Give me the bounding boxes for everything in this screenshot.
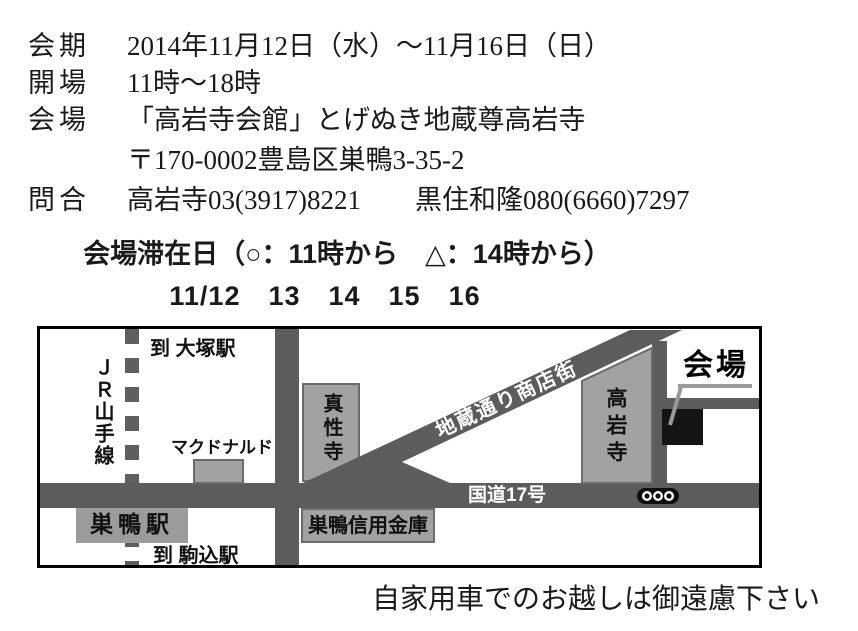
venue-label: 会場 <box>683 351 749 381</box>
info-row-kaiki: 会期 2014年11月12日（水）～11月16日（日） <box>0 24 858 58</box>
access-map: 真性寺 巣鴨駅 <box>37 326 762 568</box>
info-value: 高岩寺03(3917)8221 黒住和隆080(6660)7297 <box>127 178 689 217</box>
building-sugamo-shinkin: 巣鴨信用金庫 <box>301 508 435 543</box>
to-komagome-label: 到 駒込駅 <box>153 546 239 566</box>
info-value: 2014年11月12日（水）～11月16日（日） <box>127 24 611 63</box>
mcdonalds-label: マクドナルド <box>171 439 273 456</box>
info-value: 〒170-0002豊島区巣鴨3-35-2 <box>127 138 464 177</box>
info-row-address: 〒170-0002豊島区巣鴨3-35-2 <box>0 138 858 172</box>
route17-label: 国道17号 <box>468 486 546 505</box>
flyer-page: 会期 2014年11月12日（水）～11月16日（日） 開場 11時～18時 会… <box>0 0 858 631</box>
info-label: 会期 <box>28 24 90 63</box>
building-sugamo-station: 巣鴨駅 <box>76 508 188 543</box>
info-label: 問合 <box>28 178 90 217</box>
schedule-dates: 11/12 13 14 15 16 <box>0 274 650 313</box>
building-mcdonalds <box>193 459 244 484</box>
sugamo-shinkin-label: 巣鴨信用金庫 <box>303 516 433 536</box>
sugamo-station-label: 巣鴨駅 <box>76 513 188 536</box>
koganji-label: 高岩寺 <box>605 387 626 468</box>
info-value: 「高岩寺会館」とげぬき地蔵尊高岩寺 <box>127 98 585 137</box>
info-label: 会場 <box>28 98 90 137</box>
info-value: 11時～18時 <box>127 61 261 100</box>
info-row-venue: 会場 「高岩寺会館」とげぬき地蔵尊高岩寺 <box>0 98 858 132</box>
to-otsuka-label: 到 大塚駅 <box>150 339 236 359</box>
info-label: 開場 <box>28 61 90 100</box>
jr-yamanote-label: ＪＲ山手線 <box>92 357 112 467</box>
info-row-contact: 問合 高岩寺03(3917)8221 黒住和隆080(6660)7297 <box>0 178 858 212</box>
footer-note: 自家用車でのお越しは御遠慮下さい <box>372 577 820 617</box>
schedule-title: 会場滞在日（○：11時から △：14時から） <box>0 232 694 271</box>
traffic-light-icon <box>637 488 679 504</box>
info-row-kaijo-hours: 開場 11時～18時 <box>0 61 858 95</box>
venue-callout-pointer <box>670 387 681 425</box>
